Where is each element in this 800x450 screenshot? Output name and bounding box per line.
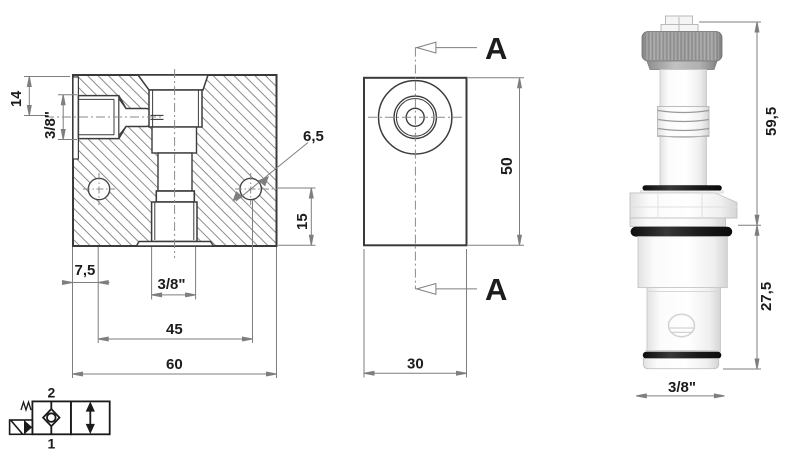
svg-text:A: A: [485, 272, 507, 307]
svg-text:2: 2: [48, 385, 56, 401]
svg-text:60: 60: [166, 356, 183, 373]
svg-text:14: 14: [9, 91, 25, 107]
svg-text:45: 45: [166, 321, 183, 338]
svg-text:3/8": 3/8": [42, 111, 59, 139]
svg-text:27,5: 27,5: [758, 282, 775, 311]
svg-text:15: 15: [294, 213, 311, 230]
svg-text:50: 50: [499, 157, 516, 175]
svg-text:7,5: 7,5: [75, 262, 96, 279]
svg-text:3/8": 3/8": [668, 379, 696, 396]
svg-text:1: 1: [48, 436, 56, 450]
svg-text:A: A: [485, 31, 507, 66]
svg-text:59,5: 59,5: [763, 107, 780, 136]
svg-text:3/8": 3/8": [158, 276, 186, 293]
svg-text:6,5: 6,5: [303, 128, 324, 145]
svg-text:30: 30: [407, 356, 424, 373]
